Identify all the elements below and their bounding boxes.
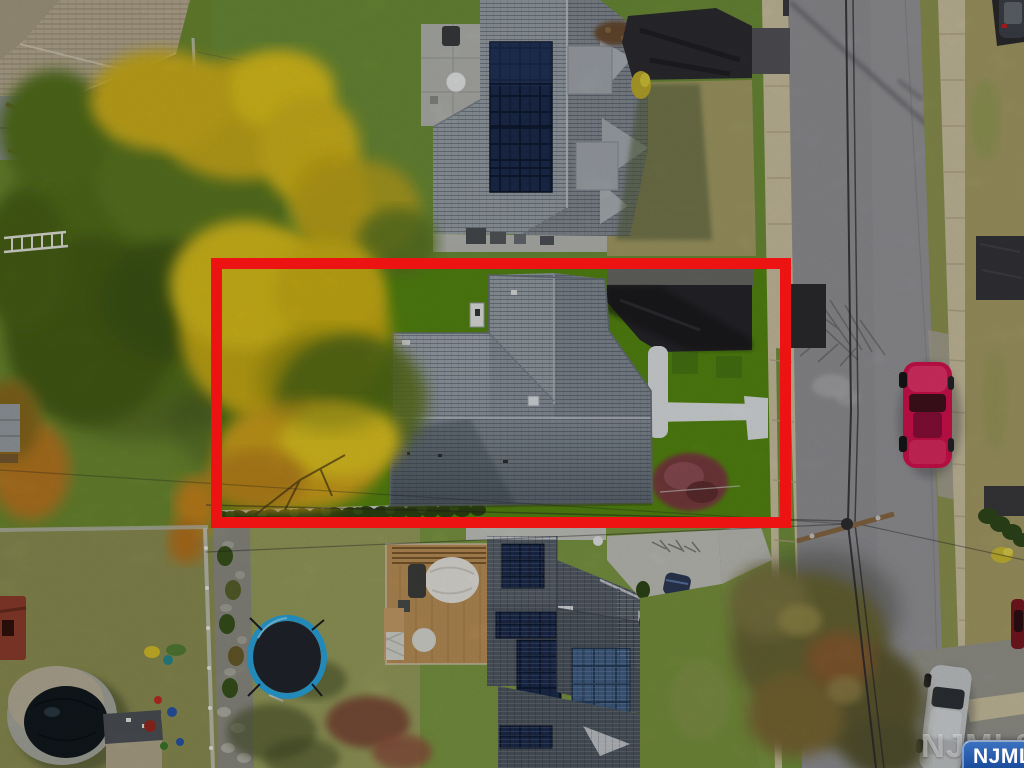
mls-logo-badge: NJMLS — [962, 740, 1024, 768]
mottle — [0, 0, 1024, 768]
photo-canvas — [0, 0, 1024, 768]
aerial-photo: NJMLS NJMLS — [0, 0, 1024, 768]
